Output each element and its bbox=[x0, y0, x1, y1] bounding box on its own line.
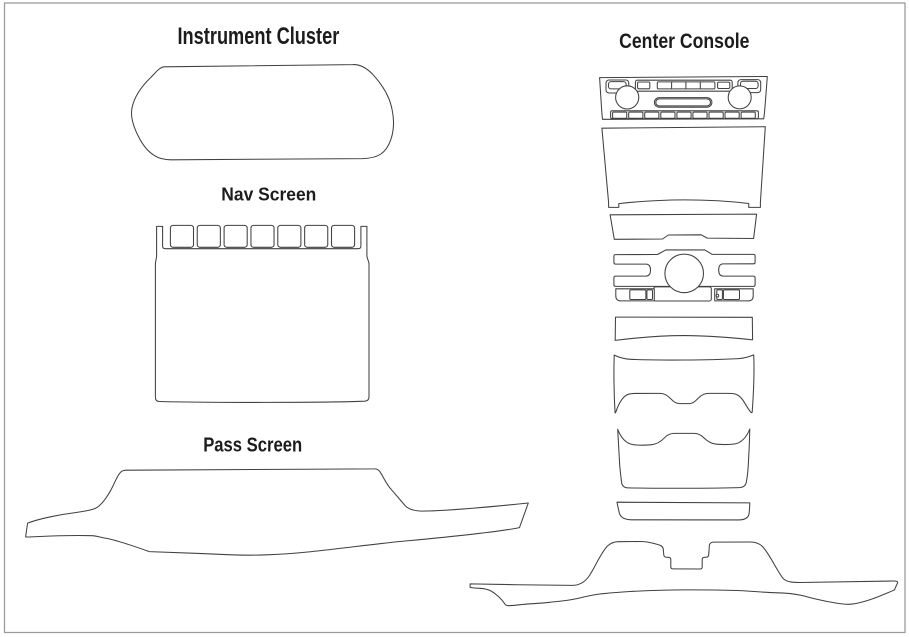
svg-text:Pass Screen: Pass Screen bbox=[203, 435, 302, 457]
svg-text:Center Console: Center Console bbox=[619, 29, 749, 53]
svg-text:Instrument Cluster: Instrument Cluster bbox=[178, 23, 340, 50]
svg-text:Nav Screen: Nav Screen bbox=[221, 184, 316, 205]
